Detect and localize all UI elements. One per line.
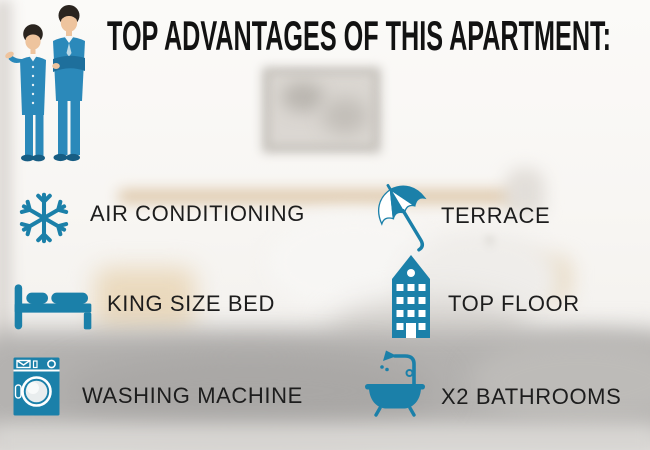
feature-label: AIR CONDITIONING bbox=[90, 201, 305, 227]
feature-label: TOP FLOOR bbox=[448, 291, 580, 317]
businessmen-illustration bbox=[3, 3, 98, 166]
feature-label: WASHING MACHINE bbox=[82, 383, 303, 409]
snowflake-icon bbox=[16, 189, 72, 247]
building-icon bbox=[389, 251, 433, 338]
infographic: TOP ADVANTAGES OF THIS APARTMENT: AIR CO… bbox=[0, 0, 650, 450]
washing-machine-icon bbox=[13, 357, 60, 416]
bed-icon bbox=[6, 281, 100, 331]
feature-label: TERRACE bbox=[441, 203, 550, 229]
businessman-gesturing bbox=[4, 24, 46, 161]
feature-label: KING SIZE BED bbox=[107, 291, 275, 317]
businessman-arms-crossed bbox=[52, 5, 85, 161]
page-title: TOP ADVANTAGES OF THIS APARTMENT: bbox=[107, 13, 611, 59]
umbrella-icon bbox=[364, 180, 432, 254]
bathtub-icon bbox=[364, 348, 426, 416]
feature-label: X2 BATHROOMS bbox=[441, 384, 621, 410]
